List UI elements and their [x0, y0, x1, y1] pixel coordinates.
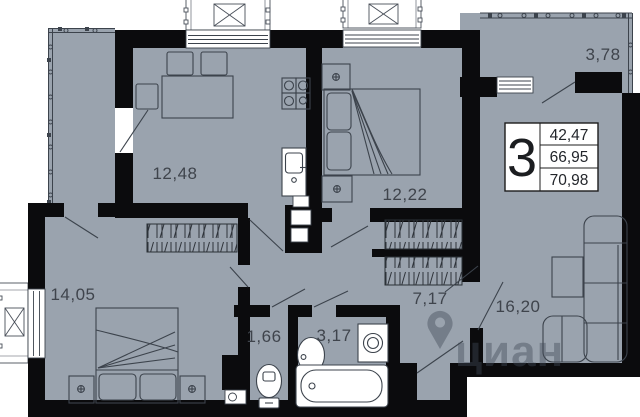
window-bedroom-left — [28, 289, 45, 358]
badge-area-total: 70,98 — [550, 172, 589, 189]
room-area-label-hallway: 7,17 — [412, 289, 447, 308]
right-wing-floor — [460, 13, 633, 377]
room-area-label-wc: 1,66 — [246, 327, 281, 346]
bathtub — [296, 365, 388, 407]
wardrobe-bedroom-left — [147, 224, 237, 252]
balcony-top-left-floor — [48, 28, 115, 205]
room-area-label-living-right: 16,20 — [495, 297, 540, 316]
outside-cutout — [467, 377, 640, 417]
room-area-label-bedroom-left: 14,05 — [50, 285, 95, 304]
window-kitchen — [186, 30, 270, 48]
wardrobe-hall-top — [385, 220, 462, 249]
floor-drain-box — [225, 390, 246, 404]
room-area-label-bathroom: 3,17 — [316, 326, 351, 345]
floor-plan-page: 12,48 12,22 3,78 16,20 14,05 7,17 1,66 3… — [0, 0, 640, 417]
wardrobe-hall-bottom — [385, 257, 462, 285]
room-area-label-kitchen: 12,48 — [152, 164, 197, 183]
room-area-label-balcony-right: 3,78 — [585, 45, 620, 64]
toilet — [257, 365, 282, 409]
kitchen-sink — [282, 148, 306, 196]
left-shaft-box — [0, 283, 28, 363]
top-shaft-box-right — [341, 0, 422, 28]
top-shaft-box-left — [184, 0, 270, 30]
room-area-label-bedroom-top: 12,22 — [382, 185, 427, 204]
window-living-right — [497, 77, 533, 93]
floor-plan: 12,48 12,22 3,78 16,20 14,05 7,17 1,66 3… — [0, 0, 640, 417]
badge-area-living: 42,47 — [550, 127, 589, 144]
badge-room-count: 3 — [507, 128, 537, 188]
watermark-text: циан — [455, 327, 564, 376]
window-bedroom-top — [343, 30, 421, 47]
washing-machine — [358, 324, 388, 362]
area-badge: 3 42,47 66,95 70,98 — [505, 123, 598, 191]
badge-area-no-balcony: 66,95 — [550, 149, 589, 166]
